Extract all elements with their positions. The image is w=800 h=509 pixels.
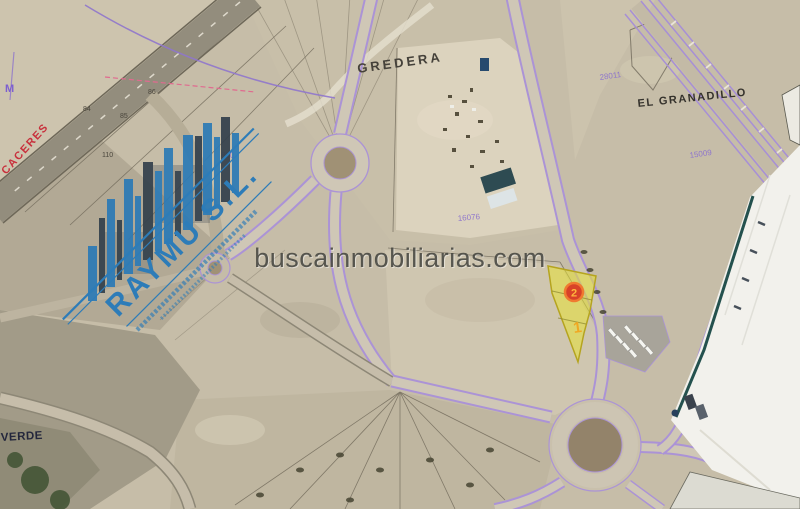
parcel-number: 84	[83, 106, 91, 113]
parcel-number: 110	[102, 152, 113, 159]
site-watermark: buscainmobiliarias.com buscainmobiliaria…	[254, 243, 547, 274]
parcel-symbol: M	[5, 83, 14, 95]
small-roundabout	[200, 253, 230, 283]
label-verde: VERDE	[1, 430, 44, 444]
parcel-number: 85	[120, 113, 128, 120]
listing-marker-primary[interactable]: 2	[565, 283, 583, 301]
site-watermark-text: buscainmobiliarias.com	[254, 243, 546, 273]
marker-primary-label: 2	[571, 288, 577, 300]
big-roundabout	[549, 399, 641, 491]
parcel-number: 86	[148, 89, 156, 96]
center-roundabout	[311, 134, 369, 192]
map-canvas[interactable]: GREDERA EL GRANADILLO CACERES VERDE 1607…	[0, 0, 800, 509]
